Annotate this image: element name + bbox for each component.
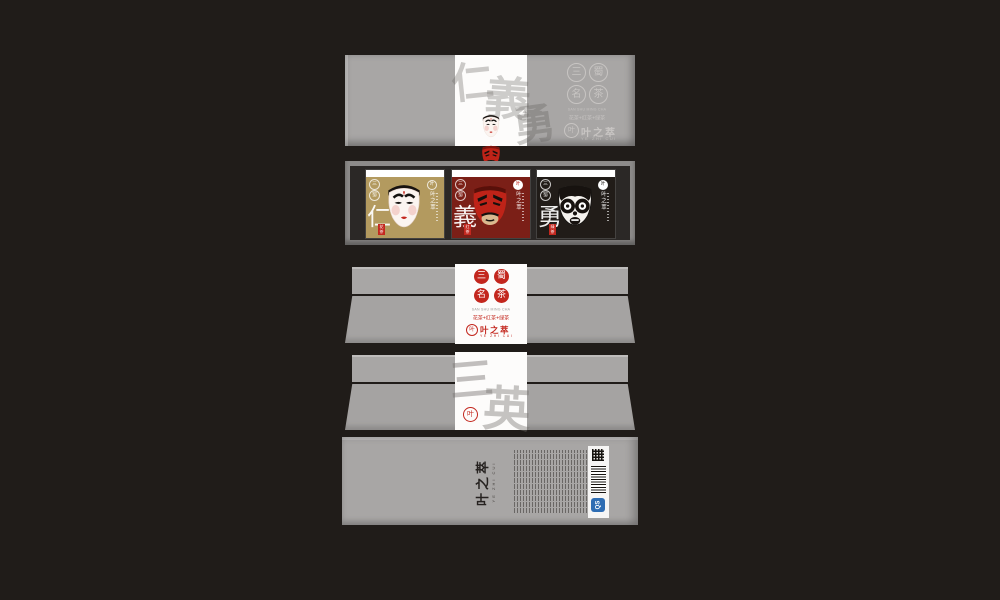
brand-logo-name: 叶之萃 <box>514 191 522 211</box>
brand-logo-sub: YE ZHI CUI <box>581 136 617 141</box>
brand-logo-sub: YE ZHI CUI <box>491 458 496 506</box>
brand-logo-name: 叶之萃 <box>599 191 607 211</box>
design-board: 仁 義 勇 <box>0 0 1000 600</box>
brand-logo-icon: 叶 <box>513 180 523 190</box>
card-fine-print <box>436 191 438 221</box>
brand-seal: 三 <box>567 63 586 82</box>
brand-logo-name: 叶之萃 <box>428 191 436 211</box>
back-side-panel: 三 英 叶 <box>345 352 635 432</box>
black-face-mask-icon <box>555 180 595 230</box>
tray-panel: 三 蜀 仁 花茶 叶 叶之萃 <box>345 161 635 245</box>
tea-card-yong: 三 蜀 勇 绿茶 叶 叶之萃 <box>537 170 615 238</box>
brand-seal-red: 三 <box>474 269 489 284</box>
datamatrix-code-icon <box>592 449 604 461</box>
card-fine-print <box>522 191 524 221</box>
red-face-mask-icon <box>470 180 510 230</box>
front-side-panel: 三 蜀 名 茶 SAN SHU MING CHA 花茶+红茶+绿茶 叶 叶之萃 … <box>345 264 635 346</box>
brand-seal: 名 <box>567 85 586 104</box>
red-stamp-icon: 叶 <box>463 407 478 422</box>
card-seal: 三 <box>369 179 380 190</box>
card-fine-print <box>607 191 609 221</box>
brand-seal-red: 蜀 <box>494 269 509 284</box>
brand-logo-icon: 叶 <box>598 180 608 190</box>
barcode-icon <box>591 466 606 493</box>
white-face-mask-icon <box>385 181 423 229</box>
tagline-en: SAN SHU MING CHA <box>562 108 612 112</box>
product-fine-print-block <box>512 450 588 514</box>
code-band: QS <box>588 446 609 518</box>
bottom-brand-block: 叶之萃 YE ZHI CUI <box>454 459 514 505</box>
tea-card-ren: 三 蜀 仁 花茶 叶 叶之萃 <box>366 170 444 238</box>
brand-seal-red: 名 <box>474 288 489 303</box>
brand-logo-name: 叶之萃 <box>472 458 491 506</box>
lid-panel: 仁 義 勇 <box>345 55 635 146</box>
qs-certification-icon: QS <box>591 498 605 512</box>
brand-seal-red: 茶 <box>494 288 509 303</box>
tea-card-yi: 三 蜀 義 红茶 叶 叶之萃 <box>452 170 530 238</box>
tagline-cn: 花茶+红茶+绿茶 <box>460 314 521 322</box>
white-face-mask-icon <box>481 113 501 138</box>
brand-seal: 茶 <box>589 85 608 104</box>
card-seal: 三 <box>540 179 551 190</box>
tagline-en: SAN SHU MING CHA <box>466 308 516 312</box>
card-seal: 三 <box>455 179 466 190</box>
brand-logo-icon: 叶 <box>466 324 478 336</box>
brand-logo-sub: YE ZHI CUI <box>480 334 513 338</box>
brand-seal: 蜀 <box>589 63 608 82</box>
bottom-panel: 叶之萃 YE ZHI CUI QS <box>342 437 638 525</box>
brand-logo-icon: 叶 <box>427 180 437 190</box>
front-center-strip: 三 蜀 名 茶 SAN SHU MING CHA 花茶+红茶+绿茶 叶 叶之萃 … <box>455 264 527 344</box>
brand-logo-icon: 叶 <box>564 123 579 138</box>
tagline-cn: 花茶+红茶+绿茶 <box>556 114 617 122</box>
card-tag: 花茶 <box>378 224 385 235</box>
